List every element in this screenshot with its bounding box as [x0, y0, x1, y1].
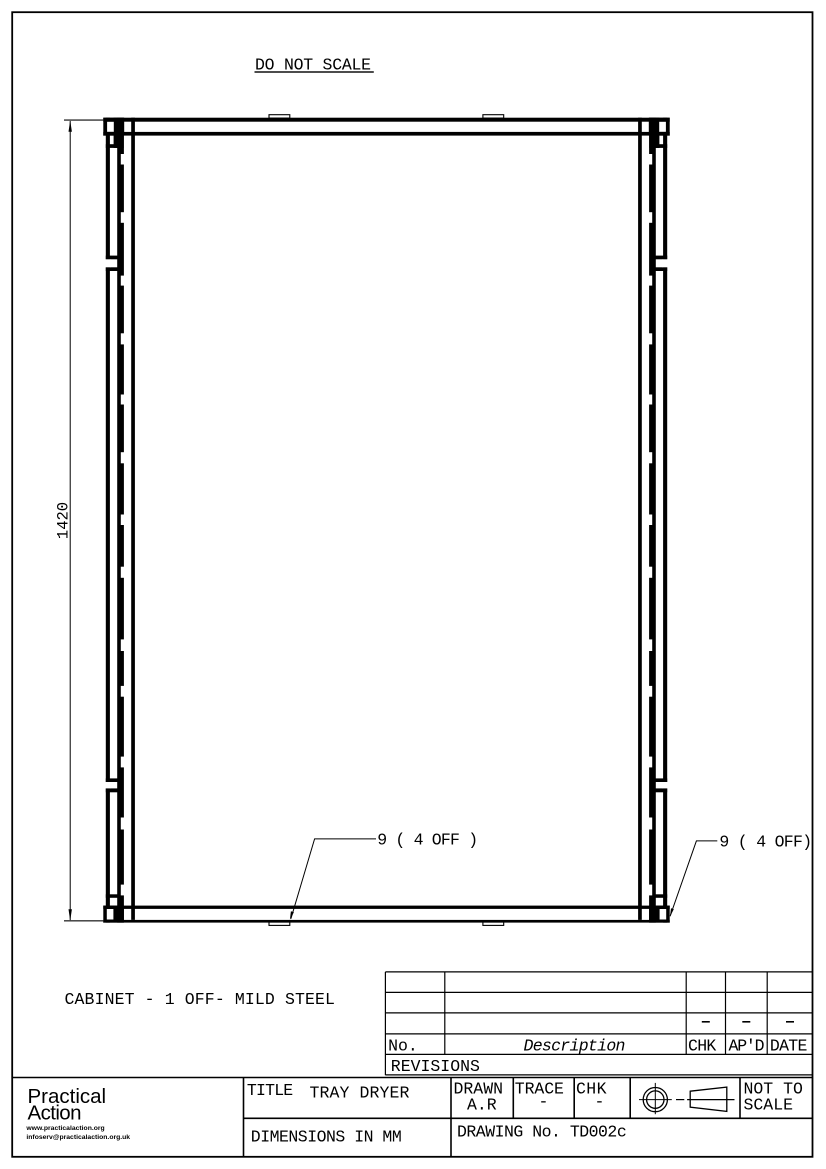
svg-text:A.R: A.R [467, 1096, 497, 1115]
svg-text:CHK: CHK [688, 1036, 716, 1055]
svg-text:DATE: DATE [770, 1036, 808, 1055]
svg-text:9 ( 4 OFF): 9 ( 4 OFF) [719, 832, 811, 851]
svg-text:TITLE: TITLE [247, 1081, 293, 1100]
svg-text:-: - [595, 1093, 605, 1112]
svg-text:REVISIONS: REVISIONS [391, 1057, 480, 1076]
svg-text:No.: No. [388, 1036, 418, 1055]
svg-text:9 ( 4 OFF ): 9 ( 4 OFF ) [377, 831, 477, 850]
svg-text:DRAWING No. TD002c: DRAWING No. TD002c [457, 1123, 626, 1142]
svg-text:1420: 1420 [55, 502, 73, 539]
svg-text:SCALE: SCALE [744, 1096, 794, 1115]
svg-text:TRAY DRYER: TRAY DRYER [310, 1084, 410, 1103]
svg-text:-: - [539, 1093, 549, 1112]
svg-text:AP'D: AP'D [729, 1036, 765, 1055]
svg-text:Description: Description [524, 1036, 625, 1055]
svg-text:infoserv@practicalaction.org.u: infoserv@practicalaction.org.uk [26, 1134, 130, 1141]
svg-text:CABINET - 1 OFF- MILD STEEL: CABINET - 1 OFF- MILD STEEL [65, 990, 336, 1009]
svg-text:www.practicalaction.org: www.practicalaction.org [25, 1125, 104, 1132]
svg-text:Action: Action [28, 1102, 82, 1125]
svg-text:DIMENSIONS IN MM: DIMENSIONS IN MM [251, 1128, 401, 1147]
